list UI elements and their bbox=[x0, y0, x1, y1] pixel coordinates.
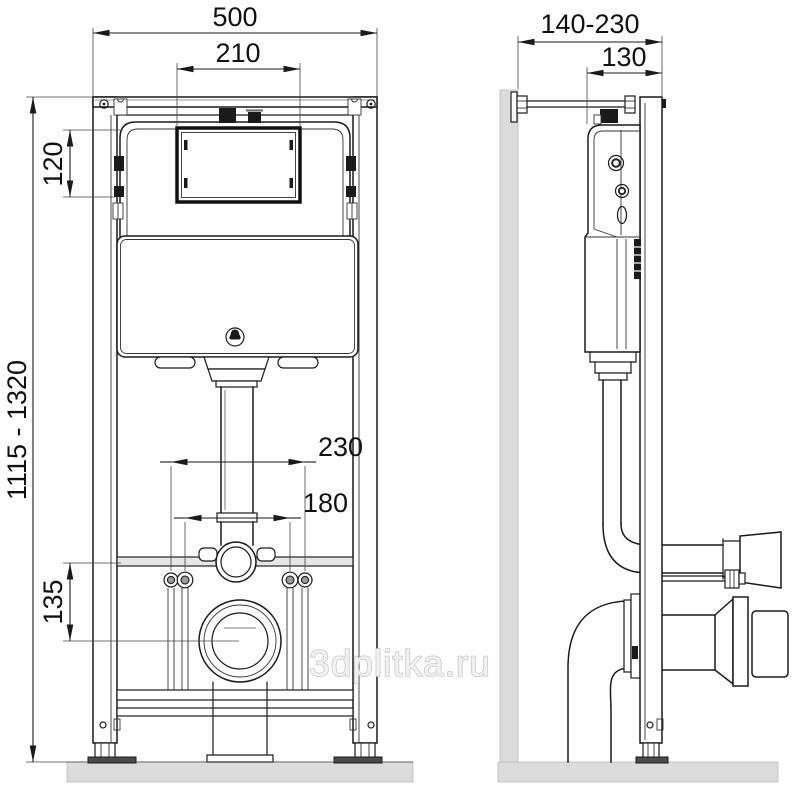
side-frame-rail bbox=[636, 97, 668, 763]
flush-pipe bbox=[117, 357, 353, 582]
frame-bottom-crossbar bbox=[117, 708, 353, 716]
frame-bottom-crossbar bbox=[117, 690, 353, 700]
dim-outlet-height-label: 135 bbox=[38, 579, 68, 624]
inlet-fitting bbox=[248, 112, 261, 123]
dim-frame-depth-label: 130 bbox=[601, 42, 646, 72]
watermark: 3dplitka.ru bbox=[309, 643, 491, 684]
leg-right bbox=[355, 743, 375, 758]
floor-side bbox=[498, 762, 778, 782]
access-panel bbox=[177, 128, 300, 202]
floor-front bbox=[67, 762, 413, 782]
dim-fixing-outer-label: 230 bbox=[318, 432, 363, 462]
wall-plate bbox=[511, 92, 517, 122]
side-flush-pipe bbox=[590, 352, 636, 524]
dim-install-height-label: 1115 - 1320 bbox=[2, 360, 32, 500]
waste-connector bbox=[662, 597, 788, 686]
leg-left bbox=[95, 743, 115, 758]
dim-window-offset-label: 120 bbox=[38, 141, 68, 186]
side-leg bbox=[643, 743, 659, 758]
side-view: 140-230 130 bbox=[511, 9, 788, 763]
dim-fixing-inner-label: 180 bbox=[303, 488, 348, 518]
dim-frame-width-label: 500 bbox=[212, 2, 257, 32]
nut bbox=[517, 96, 527, 113]
side-cistern bbox=[585, 109, 641, 524]
tank-slot bbox=[155, 357, 195, 368]
tank-slot bbox=[278, 357, 318, 368]
mounting-hatch bbox=[634, 239, 641, 279]
side-foot bbox=[636, 757, 668, 763]
outlet-flange bbox=[624, 600, 631, 672]
frame-top-crossbar bbox=[93, 97, 377, 107]
flush-pipe-holder bbox=[216, 542, 256, 582]
nut bbox=[625, 96, 635, 113]
dim-depth-range-label: 140-230 bbox=[540, 9, 639, 39]
flush-connector bbox=[603, 524, 781, 588]
dim-service-window-label: 210 bbox=[215, 38, 260, 68]
frame-rail-left bbox=[93, 97, 117, 743]
cistern bbox=[113, 108, 358, 368]
drain-elbow bbox=[568, 594, 640, 762]
wall-side bbox=[500, 90, 518, 762]
waste-outlet bbox=[199, 600, 281, 762]
filling-valve-fitting bbox=[219, 108, 236, 123]
inlet-fitting bbox=[600, 109, 618, 123]
outlet-flange bbox=[631, 594, 640, 678]
installation-drawing: 140-230 130 bbox=[0, 0, 800, 800]
